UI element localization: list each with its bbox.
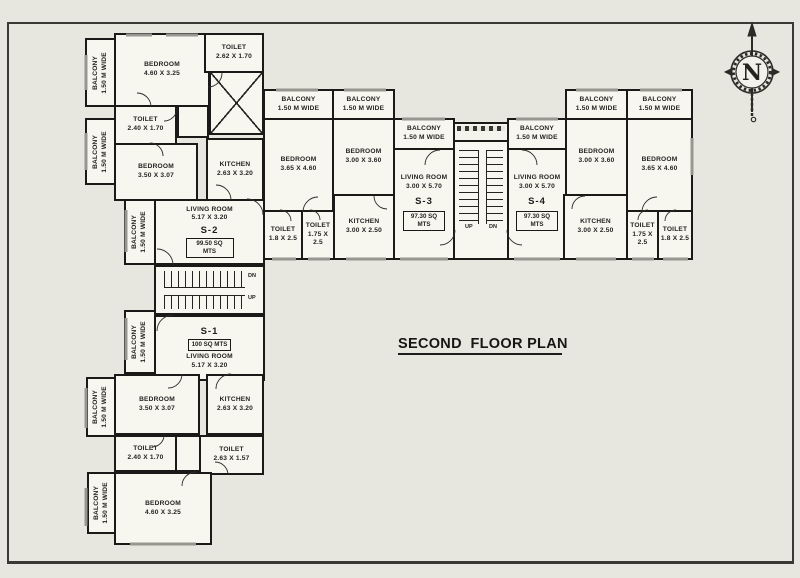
room-label: BALCONY1.50 M WIDE <box>92 386 110 427</box>
room-label: TOILET1.75 X 2.5 <box>628 222 657 249</box>
room-name: TOILET <box>128 445 164 454</box>
room-dimensions: 3.00 X 5.70 <box>401 183 448 192</box>
room-label: TOILET2.40 X 1.70 <box>128 116 164 134</box>
room-lift-shaft <box>209 71 264 135</box>
compass-north-label: N <box>742 60 762 86</box>
room-balcony-s2-c: BALCONY1.50 M WIDE <box>124 199 156 265</box>
room-stair-left: DNUP <box>154 265 265 315</box>
room-name: BALCONY <box>343 96 384 105</box>
room-name: BALCONY <box>131 321 140 362</box>
room-dimensions: 2.40 X 1.70 <box>128 454 164 463</box>
room-dimensions: 2.63 X 3.20 <box>217 405 253 414</box>
room-name: BEDROOM <box>139 396 175 405</box>
room-label: BEDROOM3.50 X 3.07 <box>138 163 174 181</box>
room-name: BALCONY <box>576 96 617 105</box>
room-label: LIVING ROOM5.17 X 3.20 <box>186 353 233 371</box>
room-label: KITCHEN3.00 X 2.50 <box>346 218 382 236</box>
room-toilet-s2-a: TOILET2.62 X 1.70 <box>204 33 264 73</box>
room-dimensions: 1.50 M WIDE <box>639 105 680 114</box>
room-name: TOILET <box>628 222 657 231</box>
room-label: TOILET1.8 X 2.5 <box>269 226 297 244</box>
north-arrow: N <box>717 20 787 125</box>
room-name: TOILET <box>216 44 252 53</box>
room-label: LIVING ROOM3.00 X 5.70 <box>401 174 448 192</box>
stair-direction-label: UP <box>248 295 256 301</box>
room-name: TOILET <box>269 226 297 235</box>
room-name: KITCHEN <box>217 161 253 170</box>
room-label: TOILET2.62 X 1.70 <box>216 44 252 62</box>
compass-arrowhead <box>748 23 756 36</box>
room-bedroom-s1-a: BEDROOM3.50 X 3.07 <box>114 374 200 435</box>
room-label: KITCHEN3.00 X 2.50 <box>578 218 614 236</box>
unit-label-s-3: S-3 <box>415 196 433 207</box>
room-dimensions: 3.50 X 3.07 <box>139 405 175 414</box>
room-bedroom-s3-a: BEDROOM3.65 X 4.60 <box>263 118 334 212</box>
compass-west-pointer <box>725 69 732 76</box>
room-label: BALCONY1.50 M WIDE <box>516 125 557 143</box>
room-name: BALCONY <box>92 131 101 172</box>
room-dimensions: 1.8 X 2.5 <box>269 235 297 244</box>
room-name: BEDROOM <box>281 156 317 165</box>
room-dimensions: 3.00 X 2.50 <box>578 227 614 236</box>
room-bedroom-s4-a: BEDROOM3.00 X 3.60 <box>565 118 628 196</box>
room-balcony-s1-a: BALCONY1.50 M WIDE <box>124 310 156 374</box>
stair-direction-label: DN <box>489 224 497 230</box>
room-balcony-s4-c: BALCONY1.50 M WIDE <box>626 89 693 120</box>
room-dimensions: 1.50 M WIDE <box>102 482 111 523</box>
room-label: TOILET2.63 X 1.57 <box>214 446 250 464</box>
unit-label-s-1: S-1 <box>201 326 219 337</box>
room-toilet-s1-b: TOILET2.63 X 1.57 <box>199 435 264 475</box>
floor-plan-sheet: BALCONY1.50 M WIDEBEDROOM4.60 X 3.25TOIL… <box>0 0 800 578</box>
room-balcony-s1-b: BALCONY1.50 M WIDE <box>86 377 116 437</box>
room-label: BALCONY1.50 M WIDE <box>131 321 149 362</box>
room-label: BALCONY1.50 M WIDE <box>343 96 384 114</box>
room-kitchen-s4: KITCHEN3.00 X 2.50 <box>563 194 628 260</box>
stair-divider <box>164 287 245 296</box>
room-dimensions: 3.00 X 5.70 <box>514 183 561 192</box>
room-bedroom-s1-b: BEDROOM4.60 X 3.25 <box>114 472 212 545</box>
unit-area-box: 99.50 SQ MTS <box>186 238 234 258</box>
room-balcony-s3-c: BALCONY1.50 M WIDE <box>393 118 455 150</box>
room-living-s3: LIVING ROOM3.00 X 5.70S-397.30 SQ MTS <box>393 148 455 260</box>
room-name: BALCONY <box>92 52 101 93</box>
room-living-s2: LIVING ROOM5.17 X 3.20S-299.50 SQ MTS <box>154 199 265 265</box>
room-label: BEDROOM3.00 X 3.60 <box>346 148 382 166</box>
plan-title: SECOND FLOOR PLAN <box>398 336 562 355</box>
room-label: BEDROOM3.00 X 3.60 <box>579 148 615 166</box>
room-dimensions: 3.00 X 3.60 <box>346 157 382 166</box>
room-label: TOILET2.40 X 1.70 <box>128 445 164 463</box>
room-balcony-s4-b: BALCONY1.50 M WIDE <box>565 89 628 120</box>
room-dimensions: 1.8 X 2.5 <box>661 235 689 244</box>
room-dimensions: 2.62 X 1.70 <box>216 53 252 62</box>
room-stair-center: UPDN <box>453 140 509 260</box>
room-toilet-s3-b: TOILET1.75 X 2.5 <box>301 210 335 260</box>
room-label: BEDROOM3.65 X 4.60 <box>281 156 317 174</box>
room-dimensions: 1.50 M WIDE <box>278 105 319 114</box>
room-label: BEDROOM3.50 X 3.07 <box>139 396 175 414</box>
room-label: BALCONY1.50 M WIDE <box>92 131 110 172</box>
room-dimensions: 1.50 M WIDE <box>576 105 617 114</box>
room-dimensions: 3.50 X 3.07 <box>138 172 174 181</box>
room-name: BALCONY <box>92 386 101 427</box>
room-toilet-s4-a: TOILET1.75 X 2.5 <box>626 210 659 260</box>
room-living-s1: S-1100 SQ MTSLIVING ROOM5.17 X 3.20 <box>154 315 265 381</box>
room-kitchen-s2: KITCHEN2.63 X 3.20 <box>206 138 264 201</box>
room-dimensions: 3.00 X 2.50 <box>346 227 382 236</box>
room-dimensions: 2.63 X 1.57 <box>214 455 250 464</box>
room-dimensions: 4.60 X 3.25 <box>145 509 181 518</box>
unit-area-box: 97.30 SQ MTS <box>403 211 445 231</box>
unit-label-s-2: S-2 <box>201 225 219 236</box>
room-dimensions: 1.50 M WIDE <box>101 386 110 427</box>
room-name: BALCONY <box>516 125 557 134</box>
room-name: KITCHEN <box>346 218 382 227</box>
room-dimensions: 1.75 X 2.5 <box>628 231 657 249</box>
room-kitchen-s1: KITCHEN2.63 X 3.20 <box>206 374 264 435</box>
room-label: BALCONY1.50 M WIDE <box>639 96 680 114</box>
room-dimensions: 1.50 M WIDE <box>516 134 557 143</box>
room-dimensions: 3.65 X 4.60 <box>642 165 678 174</box>
unit-label-s-4: S-4 <box>528 196 546 207</box>
room-toilet-s1-a: TOILET2.40 X 1.70 <box>114 435 177 472</box>
unit-area-box: 100 SQ MTS <box>188 339 232 351</box>
room-toilet-s4-b: TOILET1.8 X 2.5 <box>657 210 693 260</box>
room-balcony-s2-a: BALCONY1.50 M WIDE <box>85 38 116 107</box>
room-dimensions: 1.75 X 2.5 <box>303 231 333 249</box>
room-name: BALCONY <box>93 482 102 523</box>
room-lobby-s2 <box>177 105 209 138</box>
room-dimensions: 1.50 M WIDE <box>101 52 110 93</box>
room-dimensions: 1.50 M WIDE <box>101 131 110 172</box>
room-dimensions: 3.65 X 4.60 <box>281 165 317 174</box>
room-label: KITCHEN2.63 X 3.20 <box>217 161 253 179</box>
room-stair-landing-balcony <box>453 122 509 142</box>
room-name: BALCONY <box>403 125 444 134</box>
room-name: BEDROOM <box>138 163 174 172</box>
room-bedroom-s3-b: BEDROOM3.00 X 3.60 <box>332 118 395 196</box>
room-dimensions: 1.50 M WIDE <box>140 321 149 362</box>
room-name: BEDROOM <box>642 156 678 165</box>
room-name: BEDROOM <box>346 148 382 157</box>
room-kitchen-s3: KITCHEN3.00 X 2.50 <box>333 194 395 260</box>
room-dimensions: 5.17 X 3.20 <box>186 214 233 223</box>
room-name: LIVING ROOM <box>186 206 233 215</box>
room-label: BALCONY1.50 M WIDE <box>93 482 111 523</box>
room-dimensions: 2.63 X 3.20 <box>217 170 253 179</box>
room-name: KITCHEN <box>578 218 614 227</box>
compass-tail-loop <box>751 117 755 121</box>
floor-plan: BALCONY1.50 M WIDEBEDROOM4.60 X 3.25TOIL… <box>0 0 800 578</box>
room-name: TOILET <box>661 226 689 235</box>
room-name: BEDROOM <box>144 61 180 70</box>
room-label: BALCONY1.50 M WIDE <box>278 96 319 114</box>
room-label: BALCONY1.50 M WIDE <box>92 52 110 93</box>
room-label: BALCONY1.50 M WIDE <box>403 125 444 143</box>
room-name: TOILET <box>303 222 333 231</box>
room-name: BEDROOM <box>579 148 615 157</box>
room-dimensions: 2.40 X 1.70 <box>128 125 164 134</box>
room-name: BALCONY <box>278 96 319 105</box>
room-balcony-s3-b: BALCONY1.50 M WIDE <box>332 89 395 120</box>
room-name: BALCONY <box>131 211 140 252</box>
room-name: LIVING ROOM <box>514 174 561 183</box>
room-name: TOILET <box>214 446 250 455</box>
room-label: BALCONY1.50 M WIDE <box>131 211 149 252</box>
room-label: TOILET1.75 X 2.5 <box>303 222 333 249</box>
room-balcony-s3-a: BALCONY1.50 M WIDE <box>263 89 334 120</box>
room-dimensions: 4.60 X 3.25 <box>144 70 180 79</box>
room-label: BEDROOM4.60 X 3.25 <box>144 61 180 79</box>
room-label: BEDROOM3.65 X 4.60 <box>642 156 678 174</box>
room-balcony-s4-a: BALCONY1.50 M WIDE <box>507 118 567 150</box>
room-dimensions: 5.17 X 3.20 <box>186 362 233 371</box>
room-label: LIVING ROOM3.00 X 5.70 <box>514 174 561 192</box>
room-name: BEDROOM <box>145 500 181 509</box>
stair-direction-label: UP <box>465 224 473 230</box>
room-dimensions: 3.00 X 3.60 <box>579 157 615 166</box>
stair-divider <box>478 150 487 224</box>
unit-area-box: 97.30 SQ MTS <box>516 211 558 231</box>
room-dimensions: 1.50 M WIDE <box>343 105 384 114</box>
stair-direction-label: DN <box>248 273 256 279</box>
room-label: KITCHEN2.63 X 3.20 <box>217 396 253 414</box>
room-balcony-s1-c: BALCONY1.50 M WIDE <box>87 472 116 534</box>
room-bedroom-s2-b: BEDROOM3.50 X 3.07 <box>114 143 198 201</box>
room-toilet-s2-b: TOILET2.40 X 1.70 <box>114 105 177 145</box>
room-label: LIVING ROOM5.17 X 3.20 <box>186 206 233 224</box>
room-lobby-s1 <box>175 435 201 472</box>
room-name: KITCHEN <box>217 396 253 405</box>
room-label: BEDROOM4.60 X 3.25 <box>145 500 181 518</box>
room-toilet-s3-a: TOILET1.8 X 2.5 <box>263 210 303 260</box>
room-name: LIVING ROOM <box>186 353 233 362</box>
room-label: BALCONY1.50 M WIDE <box>576 96 617 114</box>
room-dimensions: 1.50 M WIDE <box>140 211 149 252</box>
room-name: LIVING ROOM <box>401 174 448 183</box>
room-living-s4: LIVING ROOM3.00 X 5.70S-497.30 SQ MTS <box>507 148 567 260</box>
room-name: BALCONY <box>639 96 680 105</box>
room-label: TOILET1.8 X 2.5 <box>661 226 689 244</box>
room-bedroom-s4-b: BEDROOM3.65 X 4.60 <box>626 118 693 212</box>
room-balcony-s2-b: BALCONY1.50 M WIDE <box>85 118 116 185</box>
room-name: TOILET <box>128 116 164 125</box>
room-bedroom-s2-a: BEDROOM4.60 X 3.25 <box>114 33 210 107</box>
room-dimensions: 1.50 M WIDE <box>403 134 444 143</box>
compass-east-pointer <box>772 69 779 76</box>
